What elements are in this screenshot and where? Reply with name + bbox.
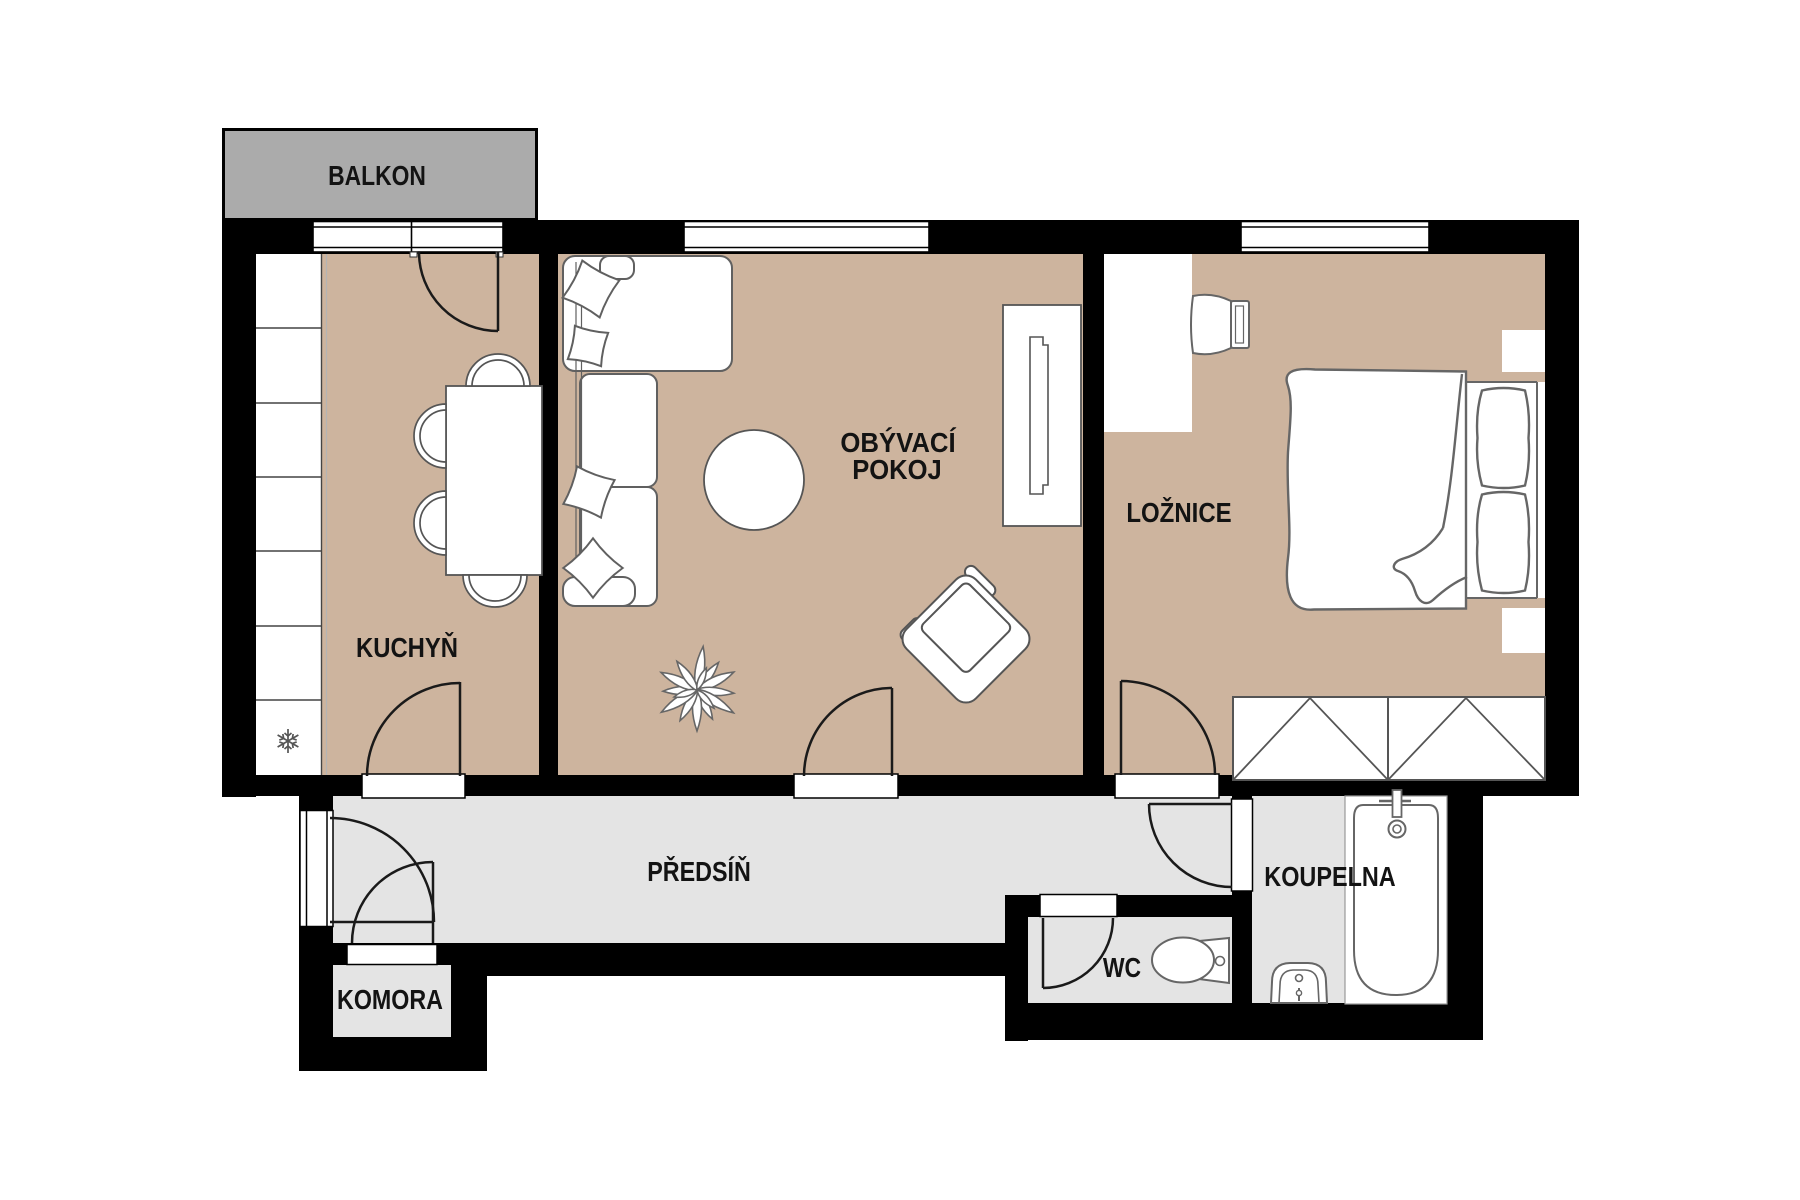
svg-text:KUCHYŇ: KUCHYŇ: [356, 631, 458, 663]
svg-text:WC: WC: [1103, 953, 1141, 984]
svg-text:KOUPELNA: KOUPELNA: [1264, 862, 1395, 892]
svg-text:BALKON: BALKON: [328, 161, 426, 192]
svg-text:LOŽNICE: LOŽNICE: [1126, 496, 1231, 528]
svg-text:POKOJ: POKOJ: [852, 454, 942, 485]
svg-text:PŘEDSÍŇ: PŘEDSÍŇ: [647, 855, 751, 888]
svg-text:KOMORA: KOMORA: [337, 985, 443, 1015]
